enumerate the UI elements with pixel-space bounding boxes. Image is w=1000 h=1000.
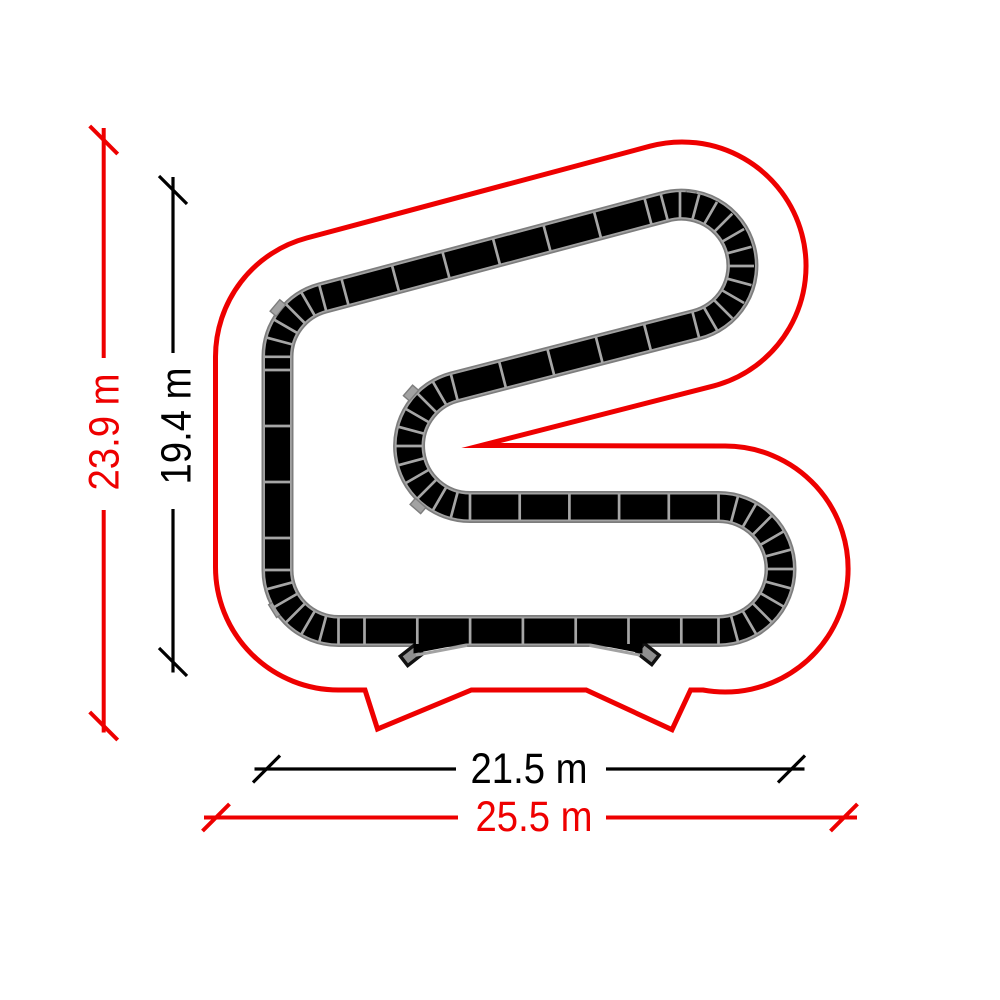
svg-text:21.5 m: 21.5 m <box>471 745 588 793</box>
svg-text:23.9 m: 23.9 m <box>81 374 129 491</box>
svg-text:25.5 m: 25.5 m <box>476 793 593 841</box>
svg-text:19.4 m: 19.4 m <box>153 368 201 485</box>
